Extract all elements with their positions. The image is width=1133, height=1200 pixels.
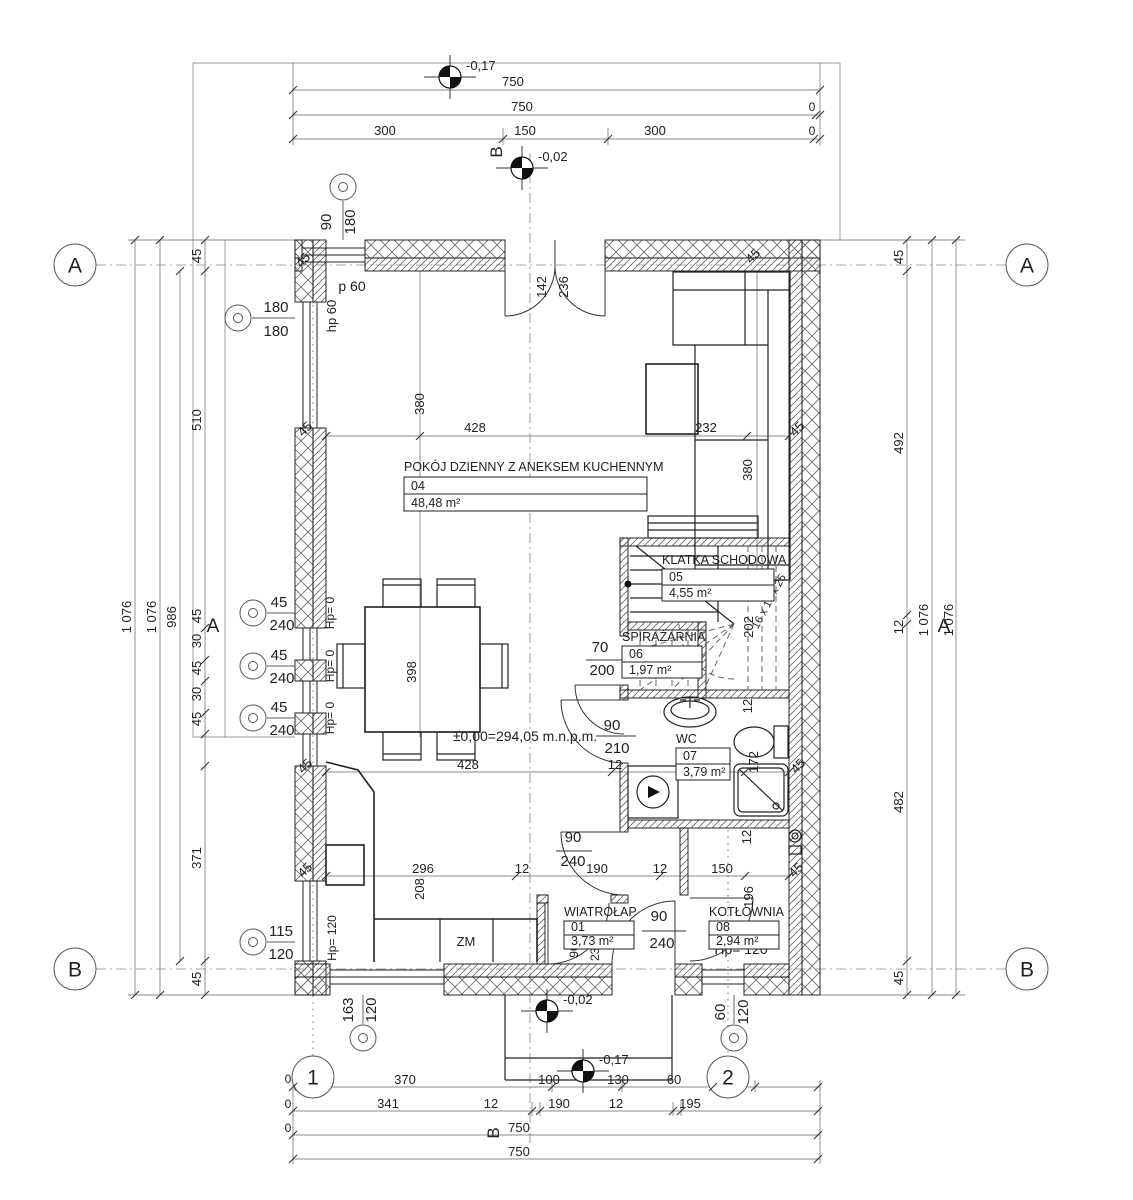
window-marker-circle — [350, 1025, 376, 1051]
living-room-furniture — [646, 272, 790, 580]
opening-height: 120 — [363, 997, 380, 1022]
dimension-label: 30 — [189, 634, 204, 648]
room-name: KOTŁOWNIA — [709, 905, 785, 919]
dimension-label: 1 076 — [119, 601, 134, 634]
sill-height-label: Hp= 0 — [323, 649, 337, 682]
dimension-label: 208 — [412, 878, 427, 900]
dimension-label: 45 — [189, 712, 204, 726]
doors — [505, 240, 753, 964]
dimension-label: 12 — [653, 861, 667, 876]
window-marker-circle — [225, 305, 251, 331]
dimension-label: 45 — [189, 609, 204, 623]
room-name: WIATROŁAP — [564, 905, 637, 919]
dimension-label: 510 — [189, 409, 204, 431]
dimension-label: 30 — [189, 687, 204, 701]
window-marker-circle — [240, 705, 266, 731]
window-marker-circle — [240, 600, 266, 626]
dimension-label: 45 — [189, 249, 204, 263]
dimension-label: 12 — [739, 830, 754, 844]
room-area: 3,73 m² — [571, 934, 613, 948]
benchmark-quadrant — [511, 157, 522, 168]
door-size-label: 240 — [560, 853, 585, 870]
dimension-label: 371 — [189, 847, 204, 869]
dimension-label: 0 — [809, 100, 816, 114]
door-size-label: 240 — [649, 935, 674, 952]
elevation-value: -0,02 — [563, 992, 593, 1007]
elevation-value: -0,17 — [466, 58, 496, 73]
dimension-label: 300 — [644, 123, 666, 138]
dimension-label: 0 — [285, 1121, 292, 1135]
axis-letter: 1 — [307, 1067, 319, 1090]
dimension-label: 172 — [746, 751, 761, 773]
room-number: 06 — [629, 647, 643, 661]
room-area: 48,48 m² — [411, 496, 460, 510]
opening-width: 115 — [269, 923, 293, 940]
room-number: 05 — [669, 570, 683, 584]
dimension-label: 300 — [374, 123, 396, 138]
windows — [295, 240, 744, 995]
room-area: 4,55 m² — [669, 586, 711, 600]
door-size-label: 200 — [589, 662, 614, 679]
opening-height: 180 — [342, 209, 359, 234]
opening-width: 180 — [263, 299, 288, 316]
room-number: 08 — [716, 920, 730, 934]
axis-b-label: B — [484, 1127, 503, 1138]
dimension-label: 12 — [515, 861, 529, 876]
sill-height-label: Hp= 120 — [325, 915, 339, 961]
opening-width: 45 — [271, 647, 288, 664]
dimension-label: 750 — [502, 74, 524, 89]
door-size-label: 90 — [565, 829, 582, 846]
room-name: POKÓJ DZIENNY Z ANEKSEM KUCHENNYM — [404, 459, 664, 474]
dimension-label: 45 — [891, 971, 906, 985]
window-marker-circle — [240, 929, 266, 955]
door-size-label: 90 — [651, 908, 668, 925]
dimension-label: 750 — [508, 1120, 530, 1135]
dimension-label: 492 — [891, 432, 906, 454]
window-marker-circle — [330, 174, 356, 200]
window-marker-circle — [240, 653, 266, 679]
dimension-label: 190 — [586, 861, 608, 876]
opening-height: 120 — [735, 999, 752, 1024]
dimension-label: 12 — [484, 1096, 498, 1111]
axis-b-label: B — [487, 146, 506, 157]
dimension-label: 482 — [891, 791, 906, 813]
room-number: 04 — [411, 479, 425, 493]
dimension-label: 130 — [607, 1072, 629, 1087]
sill-height-label: p 60 — [338, 278, 365, 294]
opening-height: 240 — [269, 617, 294, 634]
opening-width: 60 — [712, 1004, 729, 1021]
opening-width: 45 — [271, 594, 288, 611]
dimension-label: 398 — [404, 661, 419, 683]
dimension-label: 150 — [514, 123, 536, 138]
kitchen-appliance-label: ZM — [457, 934, 476, 949]
dimension-label: 190 — [548, 1096, 570, 1111]
elevation-note: ±0,00=294,05 m.n.p.m. — [453, 728, 597, 744]
dimension-label: 296 — [412, 861, 434, 876]
dimension-label: 986 — [164, 606, 179, 628]
dimension-label: 236 — [556, 276, 571, 298]
sill-height-label: Hp= 0 — [323, 596, 337, 629]
opening-width: 163 — [340, 997, 357, 1022]
dimension-label: 12 — [740, 699, 755, 713]
dimension-label: 1 076 — [144, 601, 159, 634]
benchmark-quadrant — [572, 1060, 583, 1071]
dimension-label: 370 — [394, 1072, 416, 1087]
room-area: 3,79 m² — [683, 765, 725, 779]
axis-letter: B — [1020, 959, 1034, 982]
opening-height: 180 — [263, 323, 288, 340]
elevation-value: -0,02 — [538, 149, 568, 164]
dimension-label: 380 — [740, 459, 755, 481]
room-name: WC — [676, 732, 697, 746]
dimension-label: 750 — [511, 99, 533, 114]
dimension-label: 232 — [695, 420, 717, 435]
window-marker-circle — [721, 1025, 747, 1051]
axis-section-label: A — [938, 616, 951, 637]
dimension-label: 1 076 — [916, 604, 931, 637]
dimension-label: 0 — [285, 1072, 292, 1086]
opening-width: 45 — [271, 699, 288, 716]
opening-width: 90 — [318, 214, 335, 231]
dimension-label: 750 — [508, 1144, 530, 1159]
opening-height: 240 — [269, 722, 294, 739]
axis-letter: B — [68, 959, 82, 982]
benchmark-quadrant — [522, 168, 533, 179]
axis-letter: A — [68, 255, 82, 278]
dimension-label: 0 — [285, 1097, 292, 1111]
dimension-label: 195 — [679, 1096, 701, 1111]
door-size-label: 90 — [604, 717, 621, 734]
opening-height: 120 — [268, 946, 293, 963]
benchmark-quadrant — [547, 1011, 558, 1022]
dimension-label: 60 — [667, 1072, 681, 1087]
room-name: KLATKA SCHODOWA — [662, 553, 787, 567]
dimension-label: 142 — [534, 276, 549, 298]
dimension-label: 100 — [538, 1072, 560, 1087]
dimension-label: 428 — [464, 420, 486, 435]
grid-axis-lines — [96, 153, 1006, 1145]
floor-plan-canvas: 75075003001503000BB1 0761 07698645510453… — [0, 0, 1133, 1200]
room-number: 01 — [571, 920, 585, 934]
elevation-value: -0,17 — [599, 1052, 629, 1067]
sill-height-label: Hp= 0 — [323, 701, 337, 734]
dimension-label: 150 — [711, 861, 733, 876]
dimension-label: 45 — [189, 972, 204, 986]
benchmark-quadrant — [439, 66, 450, 77]
dimension-label: 0 — [809, 124, 816, 138]
dimension-label: 341 — [377, 1096, 399, 1111]
room-number-box — [404, 477, 647, 494]
floor-plan-page: 75075003001503000BB1 0761 07698645510453… — [0, 0, 1133, 1200]
dimension-label: 428 — [457, 757, 479, 772]
room-area: 2,94 m² — [716, 934, 758, 948]
door-size-label: 210 — [604, 740, 629, 757]
dimension-label: 45 — [891, 250, 906, 264]
axis-letter: A — [1020, 255, 1034, 278]
room-area: 1,97 m² — [629, 663, 671, 677]
axis-letter: 2 — [722, 1067, 734, 1090]
benchmark-quadrant — [536, 1000, 547, 1011]
door-size-label: 70 — [592, 639, 609, 656]
dimension-label: 380 — [412, 393, 427, 415]
opening-height: 240 — [269, 670, 294, 687]
room-name: SPIRAŻARNIA — [622, 630, 706, 644]
benchmark-quadrant — [450, 77, 461, 88]
sill-height-label: hp 60 — [324, 300, 339, 333]
axis-section-label: A — [207, 616, 220, 637]
dimension-label: 12 — [609, 1096, 623, 1111]
room-number: 07 — [683, 749, 697, 763]
